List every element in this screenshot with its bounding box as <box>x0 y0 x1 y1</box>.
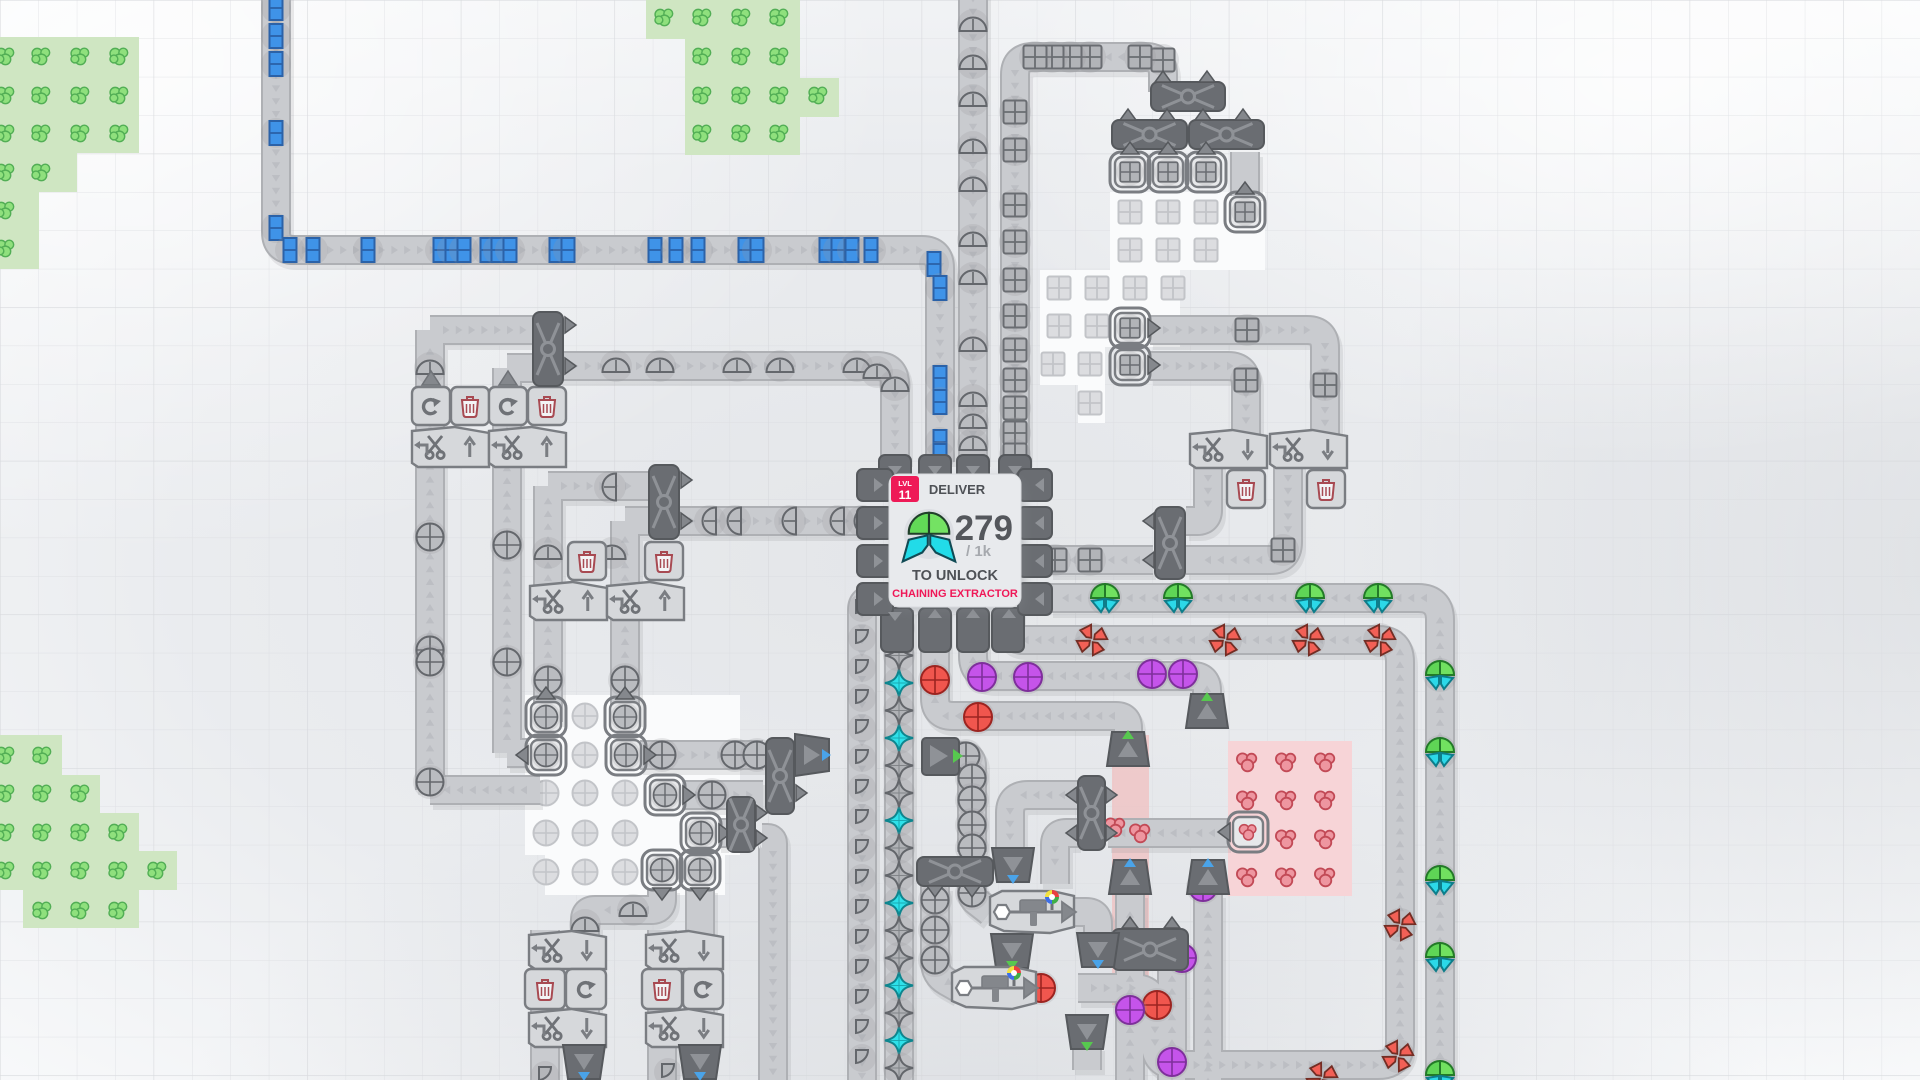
svg-text:CHAINING EXTRACTOR: CHAINING EXTRACTOR <box>892 588 1018 600</box>
svg-text:11: 11 <box>899 488 912 502</box>
svg-text:/ 1k: / 1k <box>966 543 992 560</box>
svg-text:LVL: LVL <box>898 479 912 488</box>
svg-text:DELIVER: DELIVER <box>929 482 986 497</box>
svg-text:TO UNLOCK: TO UNLOCK <box>912 568 998 584</box>
